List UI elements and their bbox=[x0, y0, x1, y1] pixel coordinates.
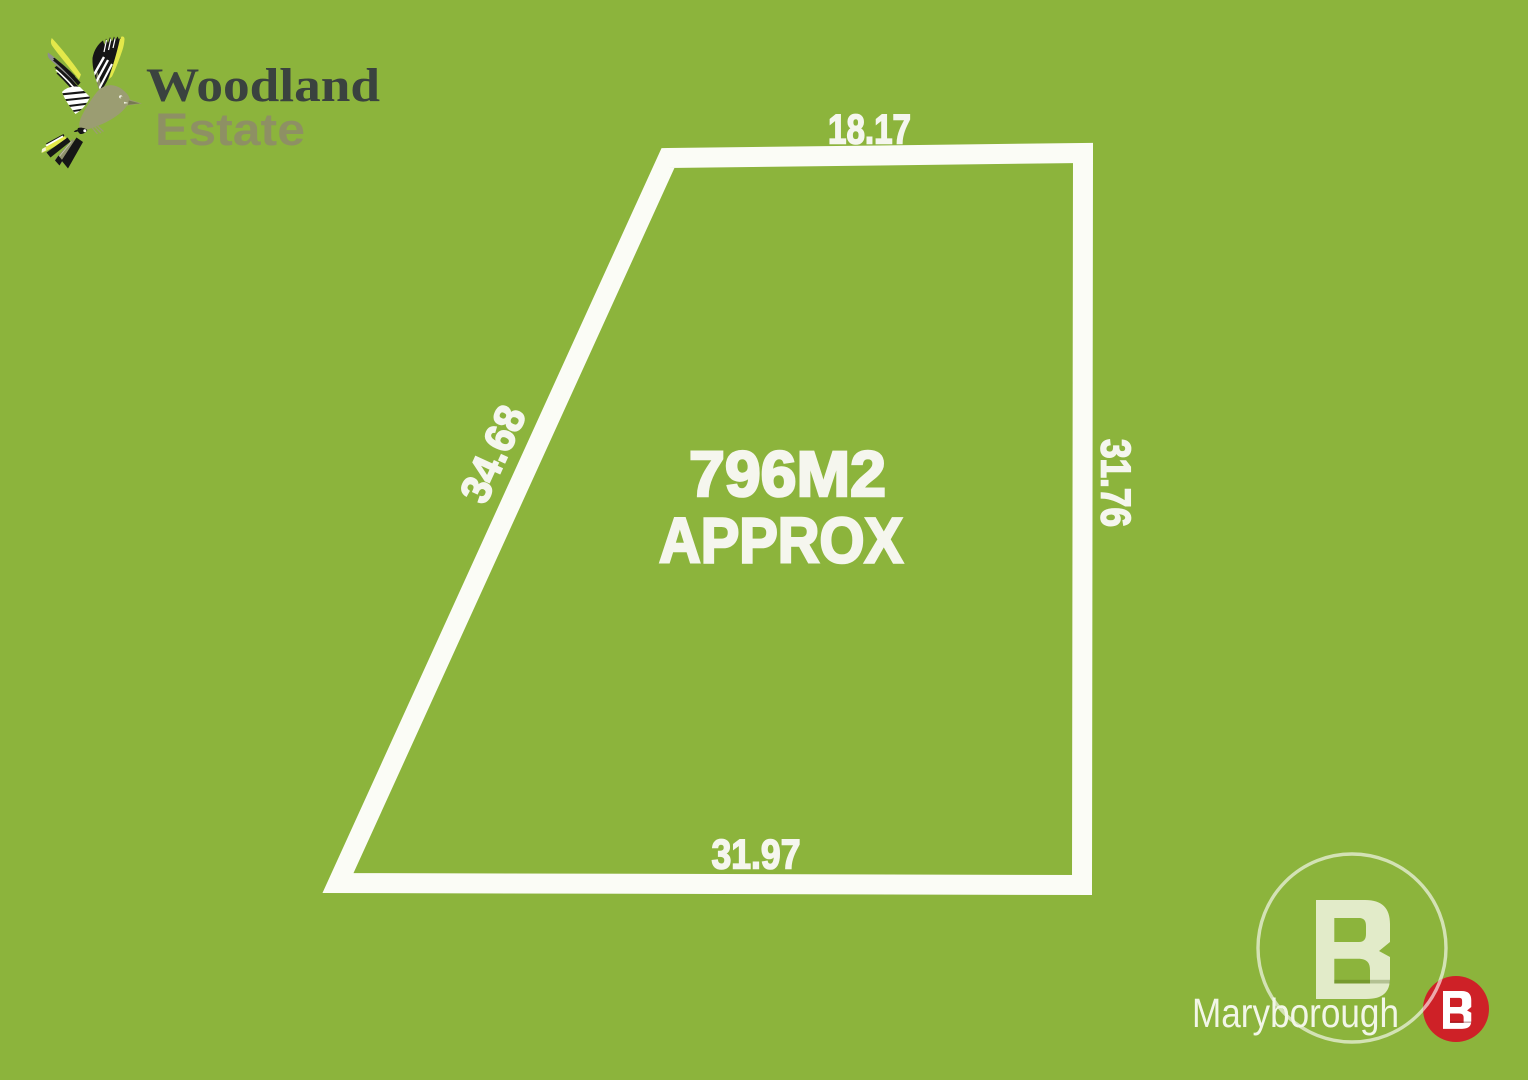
svg-text:31.97: 31.97 bbox=[712, 831, 801, 878]
svg-text:Estate: Estate bbox=[155, 104, 305, 155]
svg-text:Maryborough: Maryborough bbox=[1192, 990, 1399, 1036]
svg-text:31.76: 31.76 bbox=[1093, 439, 1140, 527]
svg-text:APPROX: APPROX bbox=[659, 505, 903, 577]
svg-text:796M2: 796M2 bbox=[689, 438, 886, 510]
svg-text:18.17: 18.17 bbox=[828, 106, 911, 153]
